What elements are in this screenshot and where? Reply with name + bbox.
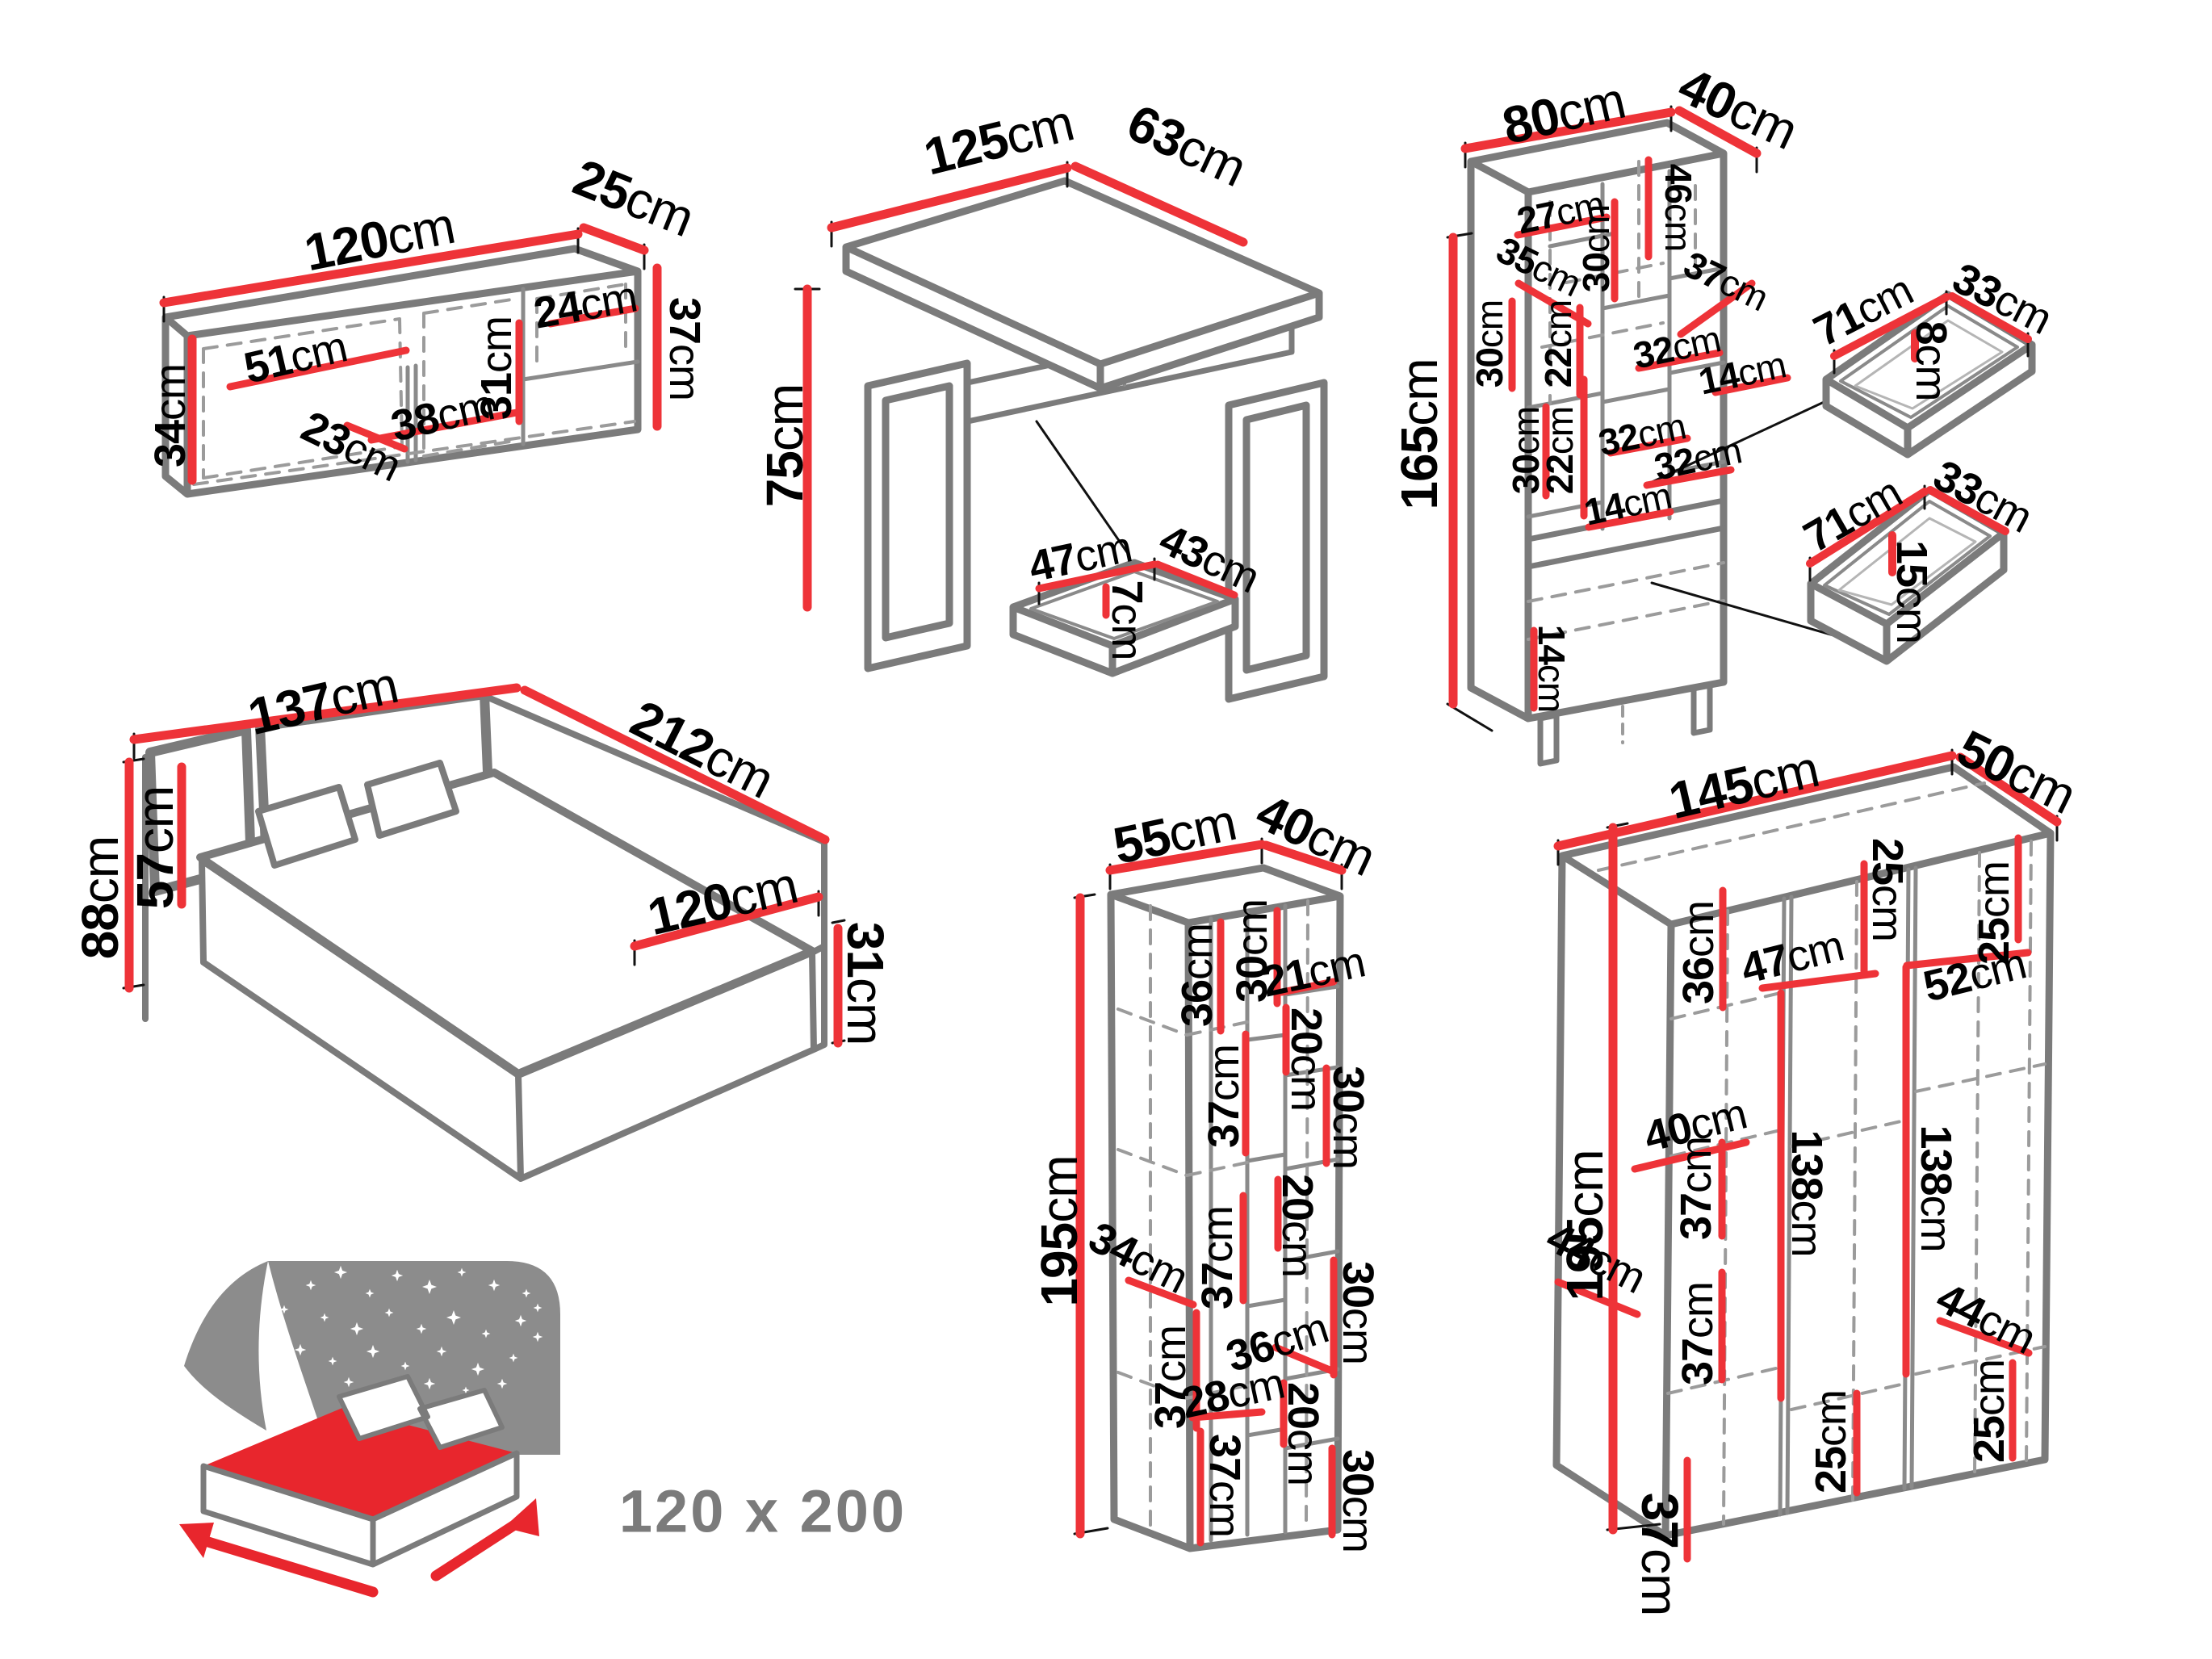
dim-label: 37cm: [1203, 1434, 1246, 1537]
furniture-dimensions-diagram: 120cm 25cm 37cm 34cm 51cm 23cm 38cm 31cm…: [0, 0, 2212, 1659]
dim-label: 138cm: [1914, 1125, 1958, 1251]
dim-label: 25cm: [1809, 1390, 1853, 1494]
dim-label: 37cm: [1634, 1493, 1686, 1616]
dim-label: 75cm: [759, 384, 811, 508]
dim-label: 34cm: [149, 364, 192, 467]
dim-label: 14cm: [1533, 625, 1570, 713]
dim-label: 20cm: [1281, 1382, 1325, 1485]
dim-label: 30cm: [1507, 407, 1544, 495]
dim-label: 30cm: [1336, 1449, 1380, 1552]
wall-cabinet-drawing: [164, 228, 657, 494]
dim-label: 37cm: [1202, 1045, 1246, 1148]
dim-label: 15cm: [1890, 540, 1933, 643]
dim-label: 36cm: [1677, 901, 1720, 1004]
bed-size-badge: 120 x 200: [619, 1477, 907, 1546]
dim-label: 30cm: [1577, 205, 1615, 293]
bed-size-icon: [179, 1261, 560, 1592]
dim-label: 8cm: [1909, 320, 1953, 400]
dim-label: 31cm: [840, 922, 891, 1045]
dim-label: 37cm: [1149, 1326, 1192, 1429]
dim-label: 25cm: [1967, 1359, 2011, 1463]
dim-label: 7cm: [1105, 580, 1149, 660]
curtain-swoosh: [184, 1261, 268, 1431]
dim-label: 37cm: [1196, 1206, 1239, 1309]
dim-label: 30cm: [1326, 1066, 1370, 1169]
dim-label: 30cm: [1336, 1261, 1380, 1364]
dim-label: 25cm: [1866, 838, 1909, 941]
dim-label: 37cm: [1676, 1282, 1720, 1385]
dim-label: 195cm: [1033, 1155, 1085, 1306]
dim-label: 165cm: [1393, 358, 1445, 509]
dim-label: 20cm: [1284, 1008, 1328, 1111]
dim-label: 20cm: [1276, 1174, 1319, 1277]
dim-label: 57cm: [129, 786, 181, 910]
dim-label: 31cm: [475, 316, 518, 420]
dim-label: 30cm: [1471, 300, 1508, 388]
dim-label: 46cm: [1660, 164, 1697, 252]
dim-label: 22cm: [1540, 300, 1577, 388]
dim-label: 37cm: [663, 297, 706, 400]
dim-label: 88cm: [74, 836, 126, 960]
dim-label: 36cm: [1175, 924, 1219, 1027]
dim-label: 138cm: [1785, 1129, 1829, 1256]
